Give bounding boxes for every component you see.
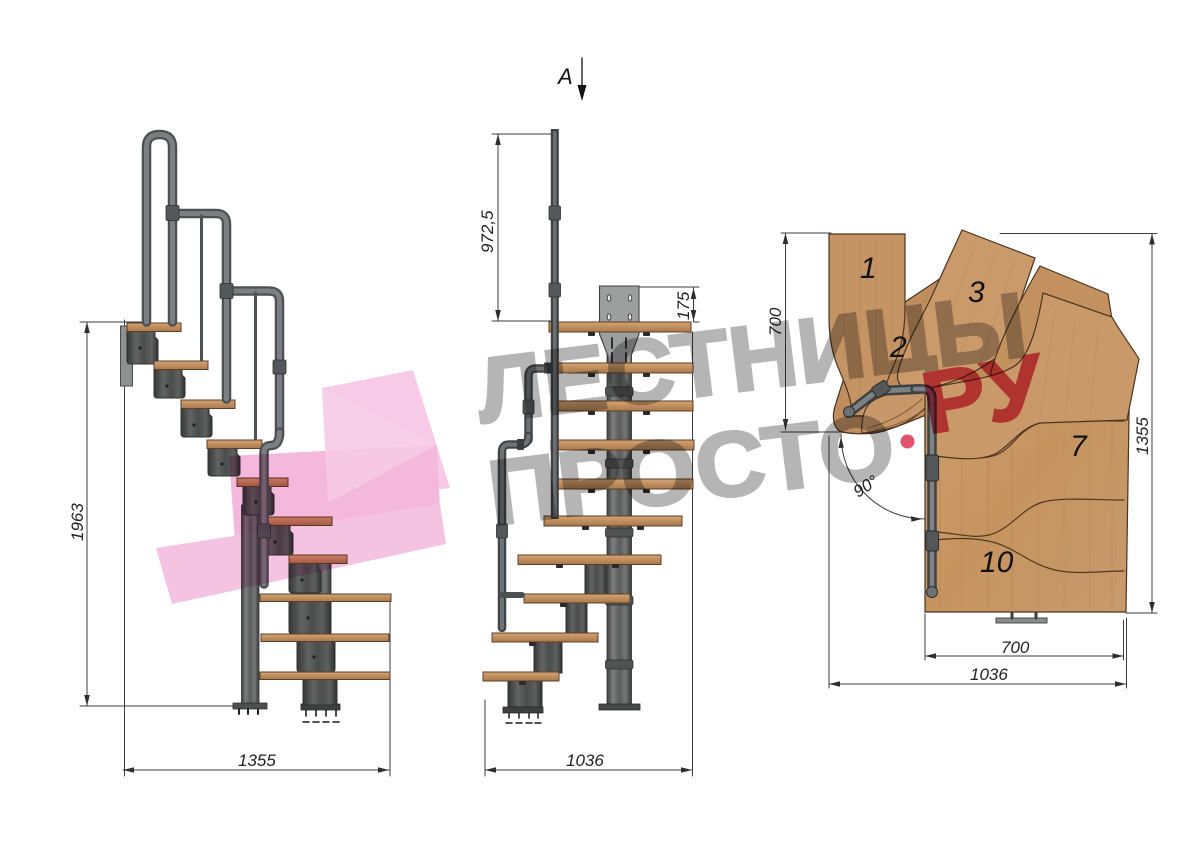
svg-text:7: 7 <box>1070 430 1088 463</box>
svg-text:1: 1 <box>860 252 877 285</box>
svg-text:1036: 1036 <box>566 751 604 770</box>
svg-text:700: 700 <box>1001 638 1030 657</box>
svg-text:1963: 1963 <box>68 503 87 541</box>
svg-text:10: 10 <box>980 546 1014 579</box>
svg-text:A: A <box>556 64 573 89</box>
svg-text:1355: 1355 <box>238 751 276 770</box>
svg-text:1036: 1036 <box>970 665 1008 684</box>
svg-text:1355: 1355 <box>1133 417 1152 455</box>
svg-text:972,5: 972,5 <box>478 210 497 253</box>
